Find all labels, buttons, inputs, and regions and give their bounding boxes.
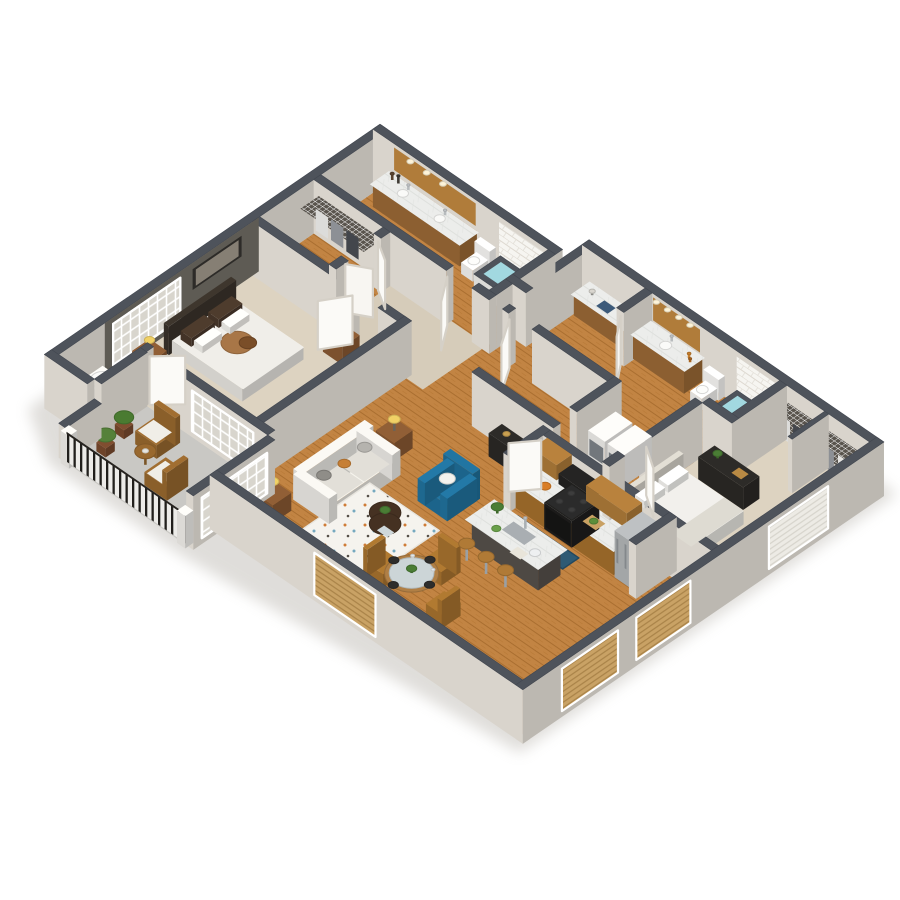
wall-bath1-south-b-east-face xyxy=(489,295,496,354)
vanity2-faucet xyxy=(670,335,673,337)
dining-glass-2 xyxy=(431,568,435,571)
lamp-living-north xyxy=(388,415,400,423)
dining-glass-1 xyxy=(411,554,415,557)
wall-east-south-face xyxy=(516,685,523,744)
armchair-pillow xyxy=(439,473,455,484)
railing-post-east-south-face xyxy=(177,511,185,549)
vanity2-light-4 xyxy=(687,323,694,327)
vanity1-light-2 xyxy=(423,170,430,175)
burner-2 xyxy=(580,499,587,504)
place-setting-west xyxy=(389,557,399,564)
vanity2-bottle-1 xyxy=(687,352,691,355)
bar-stool-2 xyxy=(478,551,494,562)
dining-centerpiece-plant xyxy=(407,565,417,572)
vanity1-light-3 xyxy=(440,182,447,187)
floorplan-canvas: 3D isometric floor plan render of a two … xyxy=(0,0,900,900)
vanity1-sink-right xyxy=(434,215,445,223)
patio-plant-1 xyxy=(114,411,133,424)
sofa-pillow-gray-1 xyxy=(357,442,372,452)
vanity1-faucet-right xyxy=(444,209,447,211)
console-decor-box xyxy=(503,432,510,437)
island-plates xyxy=(529,549,540,557)
vanity2-light-2 xyxy=(664,308,671,312)
vanity2-light-3 xyxy=(676,315,683,319)
burner-4 xyxy=(568,507,575,512)
island-plant xyxy=(491,503,503,511)
burner-1 xyxy=(568,491,575,496)
vanity1-sink-left xyxy=(397,190,408,198)
place-setting-east xyxy=(424,581,434,588)
dining-chair-north-back-east-face xyxy=(457,545,461,575)
toilet2-tank-east-face xyxy=(719,376,725,401)
makeup-counter-vase xyxy=(589,289,595,293)
refrigerator-handle-1 xyxy=(616,538,618,564)
door-bedroom1 xyxy=(318,296,353,350)
patio-chair-1-back-east-face xyxy=(176,415,181,446)
sofa-pillow-patterned xyxy=(338,459,351,468)
sofa-pillow-gray-2 xyxy=(317,470,332,480)
vanity1-bottle-1 xyxy=(390,172,394,175)
burner-3 xyxy=(556,499,563,504)
vanity1-light-1 xyxy=(407,159,414,164)
bar-stool-1 xyxy=(459,538,475,549)
patio-chair-2-back-south-face xyxy=(162,470,167,501)
coffee-table-plant xyxy=(380,506,390,513)
island-faucet xyxy=(524,517,527,519)
place-setting-north xyxy=(425,556,435,563)
dresser-plant xyxy=(713,450,722,456)
bar-stool-3 xyxy=(498,565,514,576)
wall-closet2-divider-south-face xyxy=(788,436,792,493)
toilet2-lid xyxy=(696,385,708,393)
wall-jog-south-east-face xyxy=(526,288,533,347)
bed1-floral-pattern-2 xyxy=(239,337,256,349)
refrigerator-handle-2 xyxy=(625,544,627,570)
door-pantry xyxy=(509,440,542,491)
vanity1-faucet-left xyxy=(407,184,410,186)
vanity1-bottle-2 xyxy=(397,175,400,177)
wall-fridge-east-south-face xyxy=(629,540,636,599)
island-greens-bowl xyxy=(492,525,501,531)
counter-salad-bowl xyxy=(589,518,598,524)
vanity2-light-1 xyxy=(653,300,660,304)
vanity2-sink xyxy=(660,341,672,349)
patio-table-decor xyxy=(142,449,148,453)
toilet1-lid xyxy=(468,257,480,265)
place-setting-south xyxy=(388,582,398,589)
railing-post-east-east-face xyxy=(185,511,193,549)
lamp-window-table xyxy=(144,337,154,344)
floorplan-3d-render xyxy=(0,0,900,900)
vanity2-bottle-2 xyxy=(689,358,692,360)
door-patio xyxy=(150,356,186,405)
